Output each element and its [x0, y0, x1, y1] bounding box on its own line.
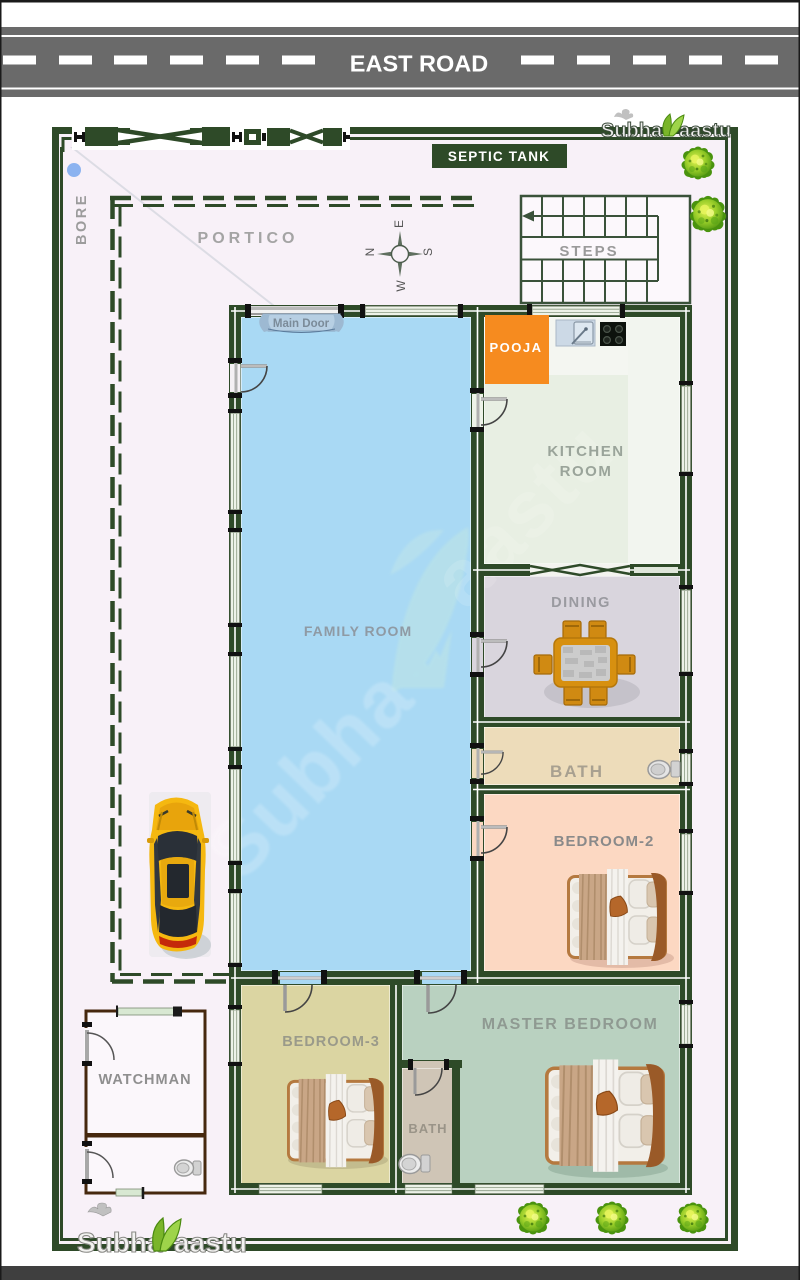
- svg-text:Main Door: Main Door: [273, 318, 330, 330]
- svg-text:SEPTIC TANK: SEPTIC TANK: [448, 149, 550, 164]
- svg-text:BATH: BATH: [550, 762, 604, 781]
- svg-text:KITCHEN: KITCHEN: [547, 443, 624, 460]
- svg-text:EAST ROAD: EAST ROAD: [350, 51, 488, 77]
- svg-text:FAMILY ROOM: FAMILY ROOM: [304, 623, 412, 639]
- svg-text:aastu: aastu: [174, 1227, 247, 1258]
- svg-text:S: S: [421, 248, 435, 256]
- svg-text:POOJA: POOJA: [489, 340, 542, 355]
- svg-text:Subha: Subha: [601, 120, 663, 142]
- svg-text:Subha: Subha: [77, 1227, 163, 1258]
- svg-text:MASTER BEDROOM: MASTER BEDROOM: [482, 1016, 659, 1033]
- svg-text:N: N: [363, 248, 377, 257]
- svg-text:BEDROOM-2: BEDROOM-2: [554, 833, 655, 850]
- svg-text:BEDROOM-3: BEDROOM-3: [282, 1034, 380, 1050]
- svg-text:ROOM: ROOM: [560, 463, 613, 480]
- svg-text:DINING: DINING: [551, 595, 611, 611]
- svg-text:STEPS: STEPS: [559, 243, 618, 260]
- svg-text:BORE: BORE: [74, 193, 90, 245]
- svg-text:BATH: BATH: [408, 1121, 447, 1136]
- svg-text:E: E: [392, 220, 406, 228]
- svg-text:PORTICO: PORTICO: [198, 230, 299, 247]
- svg-text:aastu: aastu: [679, 120, 731, 142]
- svg-text:WATCHMAN: WATCHMAN: [98, 1072, 191, 1088]
- svg-text:W: W: [394, 280, 408, 292]
